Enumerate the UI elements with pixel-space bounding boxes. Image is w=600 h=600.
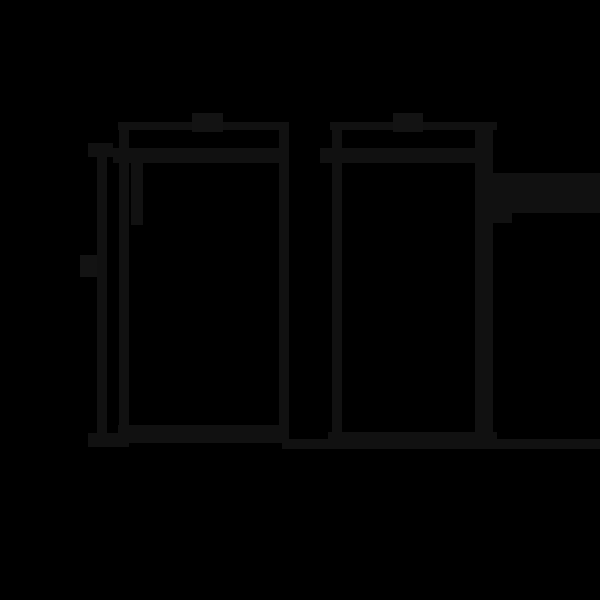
floor-baseline	[282, 439, 600, 449]
right-side-protrusion-bar	[493, 173, 600, 213]
right-panel-top-edge	[320, 148, 493, 163]
left-panel-width-label-blob	[192, 113, 223, 132]
height-dimension-bottom-tick	[88, 433, 120, 447]
height-dimension-label-blob	[80, 255, 97, 277]
left-panel-right-edge	[279, 122, 289, 443]
right-panel-left-edge	[332, 122, 342, 443]
left-panel-bottom-edge	[118, 425, 289, 443]
left-panel-inner-hinge-line	[131, 163, 143, 225]
left-panel-left-edge	[119, 122, 129, 447]
technical-drawing-canvas	[0, 0, 600, 600]
right-panel-width-label-blob	[393, 113, 423, 132]
height-dimension-line	[97, 143, 107, 447]
left-panel-top-edge	[113, 148, 289, 163]
right-panel-right-edge	[475, 122, 493, 447]
right-side-protrusion-step	[493, 213, 512, 223]
height-dimension-top-tick	[88, 143, 113, 157]
